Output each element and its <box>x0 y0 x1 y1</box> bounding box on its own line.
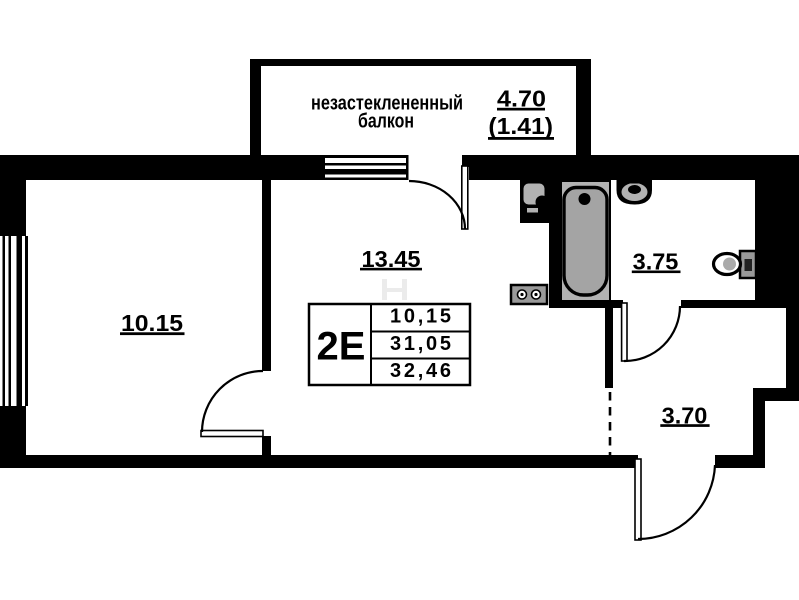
svg-text:2Е: 2Е <box>317 325 366 369</box>
svg-text:10.15: 10.15 <box>121 310 183 336</box>
svg-text:4.70: 4.70 <box>497 86 546 112</box>
svg-text:31,05: 31,05 <box>390 333 451 355</box>
svg-text:10,15: 10,15 <box>390 306 451 328</box>
svg-text:балкон: балкон <box>358 111 414 133</box>
svg-text:32,46: 32,46 <box>390 360 451 382</box>
svg-text:(1.41): (1.41) <box>488 113 553 139</box>
